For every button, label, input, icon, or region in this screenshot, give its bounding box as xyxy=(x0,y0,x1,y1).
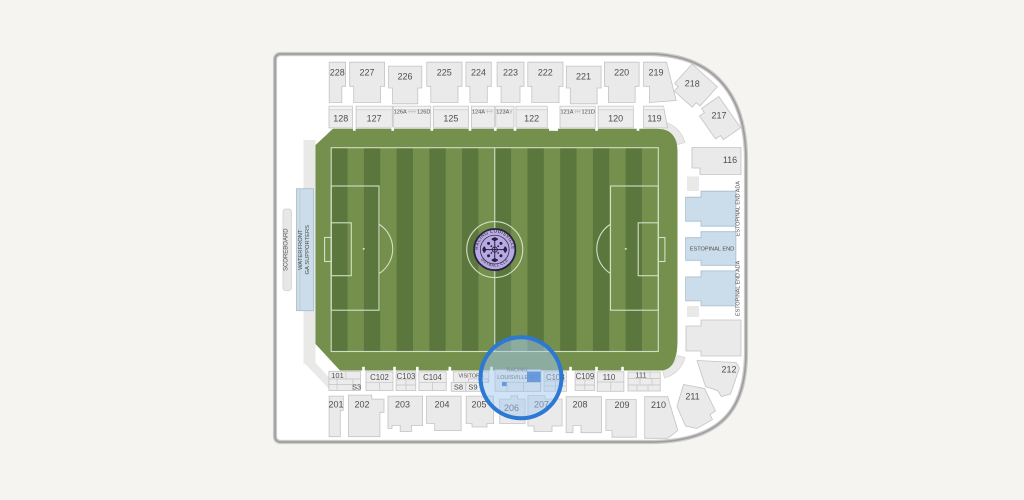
svg-text:209: 209 xyxy=(614,400,629,410)
svg-text:GA SUPPORTERS: GA SUPPORTERS xyxy=(305,225,311,275)
svg-text:128: 128 xyxy=(333,114,348,124)
svg-text:S8: S8 xyxy=(454,383,463,392)
svg-text:ESTOPINAL END ADA: ESTOPINAL END ADA xyxy=(736,260,742,316)
svg-text:203: 203 xyxy=(395,400,410,410)
svg-text:120: 120 xyxy=(608,114,623,124)
svg-text:SCOREBOARD: SCOREBOARD xyxy=(284,228,290,271)
svg-text:212: 212 xyxy=(721,365,736,375)
svg-text:126A: 126A xyxy=(394,110,407,116)
svg-text:126D: 126D xyxy=(417,110,430,116)
svg-text:116: 116 xyxy=(723,155,737,165)
svg-text:WATERFRONT: WATERFRONT xyxy=(298,229,304,270)
svg-text:210: 210 xyxy=(651,400,666,410)
svg-text:226: 226 xyxy=(397,72,412,82)
svg-text:123A: 123A xyxy=(496,110,509,116)
svg-text:202: 202 xyxy=(354,400,369,410)
svg-text:223: 223 xyxy=(503,68,518,78)
svg-text:121D: 121D xyxy=(582,110,595,116)
svg-text:222: 222 xyxy=(538,68,553,78)
svg-text:111: 111 xyxy=(635,371,646,380)
svg-text:217: 217 xyxy=(711,111,726,121)
svg-text:C102: C102 xyxy=(370,373,389,382)
svg-text:127: 127 xyxy=(367,114,382,124)
svg-text:220: 220 xyxy=(614,68,629,78)
svg-text:S9: S9 xyxy=(468,383,477,392)
svg-text:221: 221 xyxy=(576,72,591,82)
svg-text:225: 225 xyxy=(437,68,452,78)
svg-text:121A: 121A xyxy=(560,110,573,116)
svg-text:119: 119 xyxy=(647,114,661,124)
svg-text:208: 208 xyxy=(572,400,587,410)
svg-text:124A: 124A xyxy=(472,110,485,116)
svg-text:125: 125 xyxy=(443,114,458,124)
svg-text:101: 101 xyxy=(331,371,344,380)
svg-text:224: 224 xyxy=(471,68,486,78)
svg-text:211: 211 xyxy=(685,392,699,402)
svg-text:C109: C109 xyxy=(576,372,595,381)
svg-text:122: 122 xyxy=(524,114,539,124)
svg-text:110: 110 xyxy=(603,373,616,382)
svg-text:S3: S3 xyxy=(352,382,361,391)
svg-text:218: 218 xyxy=(685,78,700,89)
svg-text:ESTOPINAL END: ESTOPINAL END xyxy=(690,247,734,253)
svg-text:204: 204 xyxy=(434,400,449,410)
svg-text:201: 201 xyxy=(328,400,343,410)
svg-text:228: 228 xyxy=(330,68,345,78)
svg-text:ESTOPINAL END ADA: ESTOPINAL END ADA xyxy=(736,181,742,237)
svg-text:227: 227 xyxy=(359,68,374,78)
svg-text:C103: C103 xyxy=(397,372,416,381)
svg-text:205: 205 xyxy=(471,400,486,410)
svg-text:219: 219 xyxy=(648,68,663,78)
svg-text:C104: C104 xyxy=(423,373,442,382)
